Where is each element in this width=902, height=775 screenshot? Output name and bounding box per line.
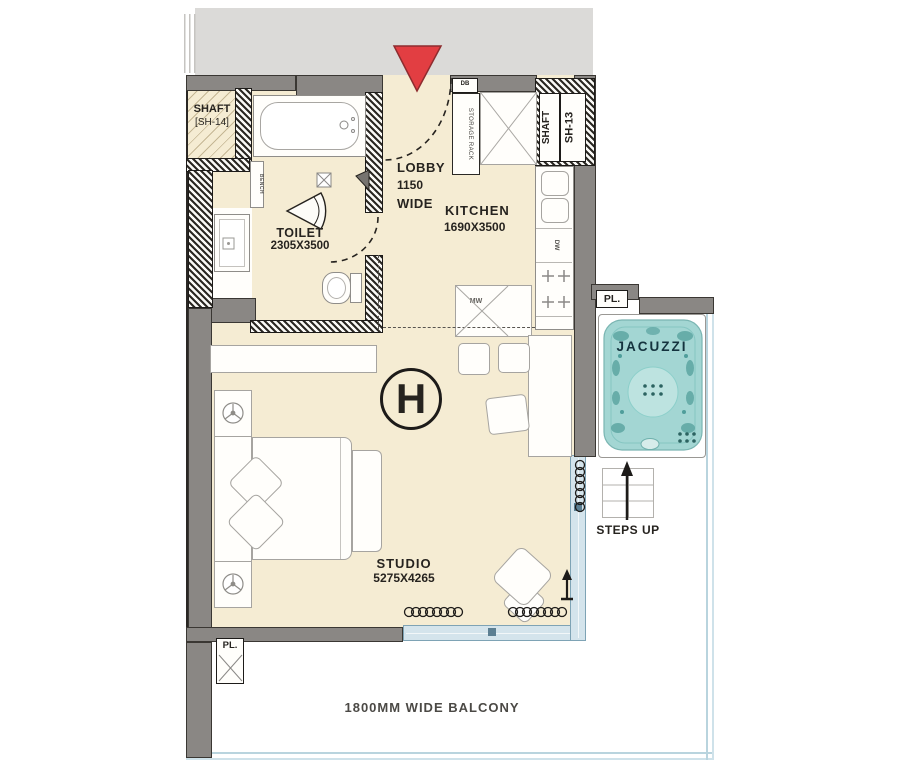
kitchen-boundary-dashed — [383, 327, 535, 328]
bed-fold-line — [340, 438, 341, 559]
bed-blanket — [352, 450, 382, 552]
lobby-boundary-dashed — [378, 255, 379, 329]
bathtub — [253, 95, 366, 157]
closet — [480, 92, 537, 165]
studio-east-window — [570, 455, 586, 641]
balcony-rail-right — [706, 312, 714, 760]
sink-bowl — [541, 198, 569, 223]
wall-west — [188, 308, 212, 642]
nightstand — [214, 390, 252, 437]
shaft14-name: SHAFT — [184, 103, 240, 116]
wall-toilet-south — [250, 320, 383, 333]
adjacent-unit-block — [195, 8, 593, 75]
wall-terrace-b — [639, 297, 714, 314]
jacuzzi-platform — [598, 314, 706, 458]
lobby-width-word: WIDE — [397, 197, 433, 212]
steps — [602, 468, 654, 518]
shaft13-label: SHAFT — [541, 95, 558, 160]
lobby-width-value: 1150 — [397, 179, 423, 193]
wall-toilet-lobby-upper — [365, 92, 383, 213]
vanity-counter — [214, 214, 250, 272]
shaft13-code: SH-13 — [564, 96, 583, 160]
studio-name: STUDIO — [354, 557, 454, 572]
balcony-label: 1800MM WIDE BALCONY — [262, 701, 602, 716]
lobby-name: LOBBY — [397, 161, 445, 176]
steps-up-label: STEPS UP — [585, 524, 671, 538]
jacuzzi-label: JACUZZI — [598, 339, 706, 355]
kitchen-dims: 1690X3500 — [444, 221, 505, 235]
microwave-label: MW — [461, 298, 491, 306]
floor-plan: SHAFT SH-13 BENCH DB STORAGE RACK DW MW — [0, 0, 902, 775]
window-mullion — [488, 628, 496, 636]
microwave-counter — [455, 285, 532, 337]
wall-west-lower — [186, 642, 212, 758]
unit-marker: H — [380, 368, 442, 430]
storage-rack-label: STORAGE RACK — [459, 94, 473, 174]
dishwasher-label: DW — [548, 230, 560, 260]
wall-west-toilet — [188, 170, 213, 308]
table — [528, 335, 572, 457]
counter-divider — [536, 228, 572, 229]
wc-bowl — [322, 272, 351, 304]
kitchen-name: KITCHEN — [445, 204, 510, 219]
dresser — [210, 345, 377, 373]
window-mullion — [574, 503, 582, 511]
planter-label-bottom: PL. — [216, 641, 244, 652]
adjacent-unit-stripes — [184, 14, 196, 73]
db-label: DB — [452, 81, 478, 88]
shaft14-code: [SH-14] — [184, 117, 240, 129]
wc-tank — [350, 273, 362, 303]
planter-label-top: PL. — [596, 293, 628, 305]
terrace-floor-strip — [586, 455, 595, 640]
chair — [485, 394, 530, 436]
bench-label: BENCH — [251, 162, 263, 206]
chair — [458, 343, 490, 375]
sink-bowl — [541, 171, 569, 196]
counter-divider — [536, 316, 572, 317]
toilet-name: TOILET — [252, 226, 348, 240]
chair — [498, 343, 530, 373]
counter-divider — [536, 262, 572, 263]
balcony-rail-bottom — [186, 752, 714, 760]
toilet-dims: 2305X3500 — [252, 240, 348, 253]
unit-marker-letter: H — [396, 375, 426, 423]
nightstand — [214, 561, 252, 608]
studio-dims: 5275X4265 — [354, 572, 454, 586]
